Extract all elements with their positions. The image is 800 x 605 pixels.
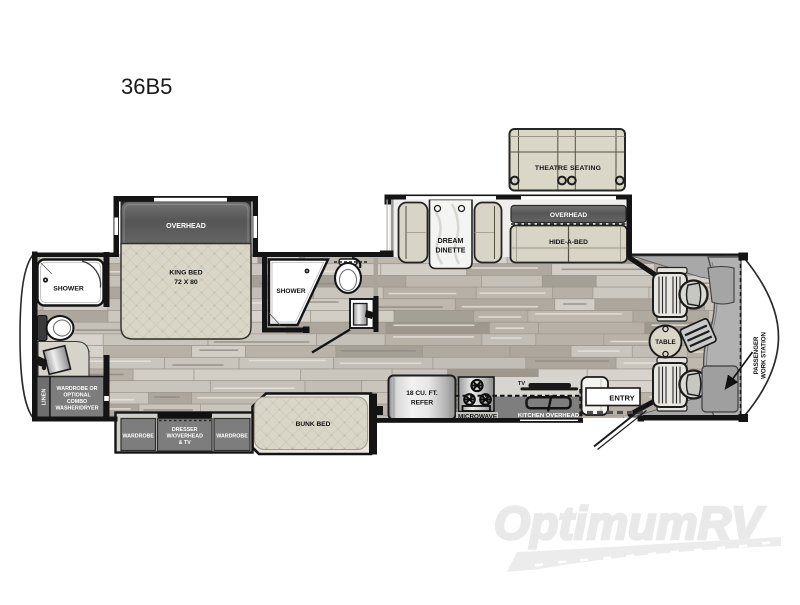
svg-text:SHOWER: SHOWER (276, 288, 306, 295)
svg-text:WASHER/DRYER: WASHER/DRYER (55, 406, 98, 412)
svg-text:72 X 80: 72 X 80 (174, 279, 198, 286)
svg-text:DREAM: DREAM (438, 238, 464, 245)
svg-text:18 CU. FT.: 18 CU. FT. (406, 390, 438, 397)
svg-text:36B5: 36B5 (121, 74, 172, 99)
svg-text:WORK STATION: WORK STATION (761, 332, 768, 379)
svg-text:WARDROBE: WARDROBE (216, 434, 248, 440)
svg-text:DINETTE: DINETTE (436, 248, 466, 255)
svg-text:COMBO: COMBO (67, 399, 87, 405)
svg-text:OPTIONAL: OPTIONAL (63, 393, 91, 399)
svg-text:TV: TV (518, 381, 525, 387)
svg-text:W/OVERHEAD: W/OVERHEAD (166, 434, 203, 440)
svg-text:REFER: REFER (411, 400, 434, 407)
svg-text:HIDE-A-BED: HIDE-A-BED (549, 239, 588, 246)
svg-text:DRESSER: DRESSER (172, 427, 198, 433)
svg-text:LINEN: LINEN (42, 389, 48, 406)
svg-text:THEATRE SEATING: THEATRE SEATING (535, 165, 601, 172)
svg-text:BUNK BED: BUNK BED (296, 421, 331, 428)
svg-text:KING BED: KING BED (169, 270, 202, 277)
svg-text:WARDROBE: WARDROBE (122, 434, 154, 440)
svg-text:ENTRY: ENTRY (609, 393, 634, 402)
svg-text:OVERHEAD: OVERHEAD (166, 223, 206, 230)
svg-text:& TV: & TV (179, 440, 192, 446)
svg-text:PASSENGER: PASSENGER (753, 336, 760, 374)
svg-text:WARDROBE OR: WARDROBE OR (57, 386, 98, 392)
svg-text:SHOWER: SHOWER (53, 286, 84, 293)
svg-text:OVERHEAD: OVERHEAD (550, 212, 588, 219)
svg-text:TABLE: TABLE (655, 339, 676, 346)
